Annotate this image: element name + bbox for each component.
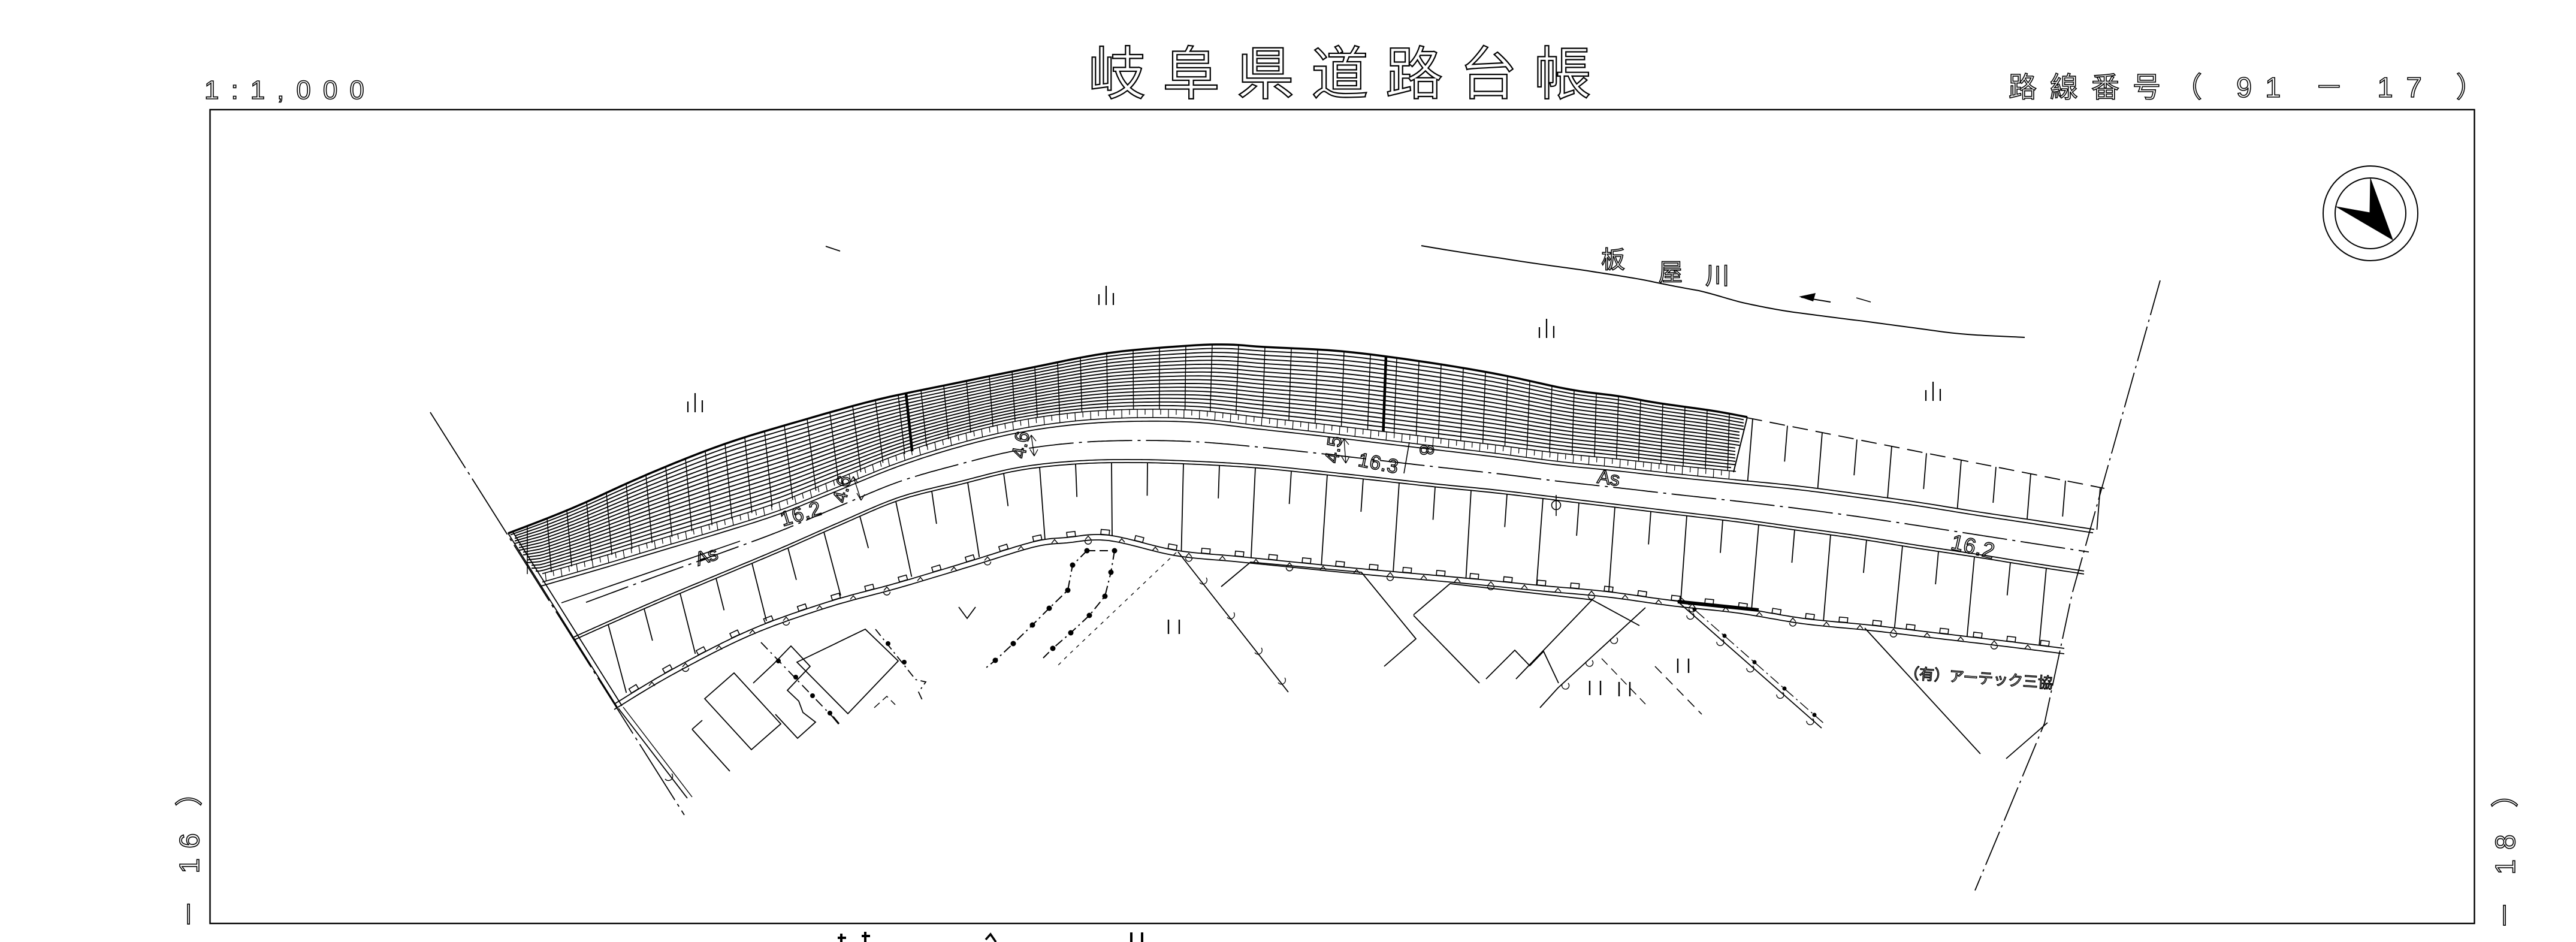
svg-text:As: As (1596, 466, 1621, 490)
svg-text:4.6: 4.6 (1007, 430, 1033, 460)
svg-text:8: 8 (1416, 445, 1438, 455)
svg-text:4.5: 4.5 (1321, 435, 1346, 464)
svg-text:1:1,000: 1:1,000 (204, 76, 376, 105)
svg-text:岐阜県道路台帳: 岐阜県道路台帳 (1088, 43, 1608, 107)
svg-text:－ 16 ）: － 16 ） (174, 769, 205, 928)
svg-text:川: 川 (1705, 263, 1729, 289)
svg-text:屋: 屋 (1659, 259, 1683, 286)
svg-text:－ 18 ）: － 18 ） (2490, 771, 2521, 929)
svg-text:路線番号（ 91 － 17 ）: 路線番号（ 91 － 17 ） (2009, 71, 2498, 103)
svg-text:板: 板 (1601, 247, 1625, 273)
